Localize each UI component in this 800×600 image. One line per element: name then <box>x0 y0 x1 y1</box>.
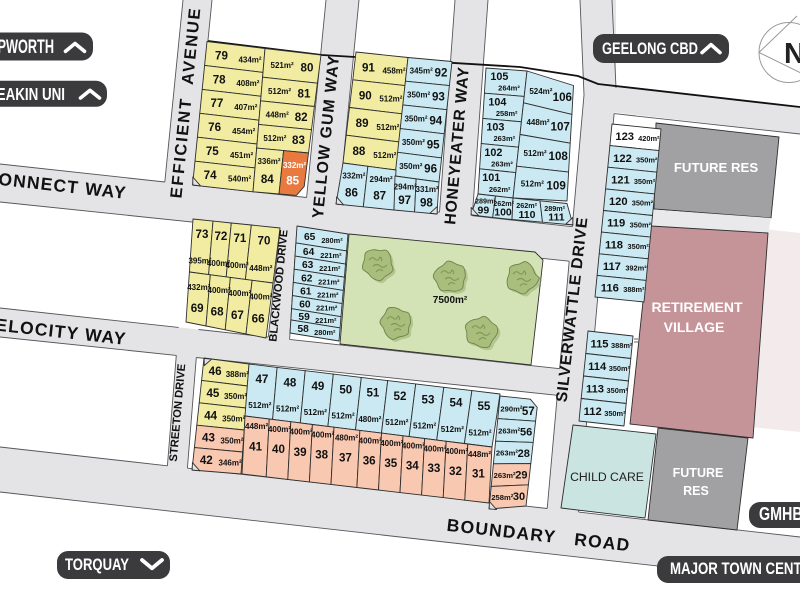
svg-text:89: 89 <box>356 117 369 130</box>
svg-text:51: 51 <box>366 387 379 400</box>
svg-text:98: 98 <box>420 197 433 210</box>
svg-text:454m²: 454m² <box>232 127 255 136</box>
svg-text:512m²: 512m² <box>376 123 399 132</box>
svg-text:45: 45 <box>206 387 219 400</box>
svg-text:400m²: 400m² <box>359 436 382 445</box>
svg-text:111: 111 <box>548 212 565 224</box>
svg-text:221m²: 221m² <box>315 316 337 325</box>
svg-text:512m²: 512m² <box>413 422 436 431</box>
svg-text:221m²: 221m² <box>317 291 339 300</box>
svg-text:332m²: 332m² <box>342 172 365 181</box>
svg-text:350m²: 350m² <box>632 199 654 208</box>
svg-text:82: 82 <box>295 111 308 124</box>
svg-text:350m²: 350m² <box>402 138 425 147</box>
svg-text:DEAKIN UNI: DEAKIN UNI <box>0 84 65 104</box>
svg-text:114: 114 <box>588 361 607 373</box>
svg-text:400m²: 400m² <box>423 444 446 453</box>
svg-text:87: 87 <box>373 190 386 203</box>
svg-text:29: 29 <box>515 469 527 481</box>
svg-text:81: 81 <box>298 88 311 101</box>
svg-text:400m²: 400m² <box>380 439 403 448</box>
svg-text:512m²: 512m² <box>248 401 271 410</box>
svg-text:350m²: 350m² <box>222 414 245 423</box>
svg-text:458m²: 458m² <box>382 67 405 76</box>
svg-text:53: 53 <box>422 393 435 406</box>
svg-text:350m²: 350m² <box>630 220 652 229</box>
svg-text:47: 47 <box>255 373 268 386</box>
svg-text:99: 99 <box>478 204 490 216</box>
svg-text:49: 49 <box>311 380 324 393</box>
svg-text:345m²: 345m² <box>410 67 433 76</box>
svg-text:108: 108 <box>549 150 569 163</box>
svg-text:400m²: 400m² <box>290 428 313 437</box>
svg-text:33: 33 <box>427 462 440 475</box>
svg-text:346m²: 346m² <box>219 459 242 468</box>
svg-text:76: 76 <box>208 121 221 134</box>
svg-text:75: 75 <box>206 145 219 158</box>
svg-text:112: 112 <box>584 406 602 418</box>
svg-text:79: 79 <box>215 49 228 62</box>
svg-text:116: 116 <box>601 283 619 295</box>
svg-text:400m²: 400m² <box>228 289 251 298</box>
svg-text:106: 106 <box>553 91 573 104</box>
svg-text:50: 50 <box>339 383 352 396</box>
svg-text:95: 95 <box>427 139 440 152</box>
svg-text:86: 86 <box>345 186 358 199</box>
svg-text:73: 73 <box>196 228 209 241</box>
svg-text:55: 55 <box>477 400 490 413</box>
svg-text:263m²: 263m² <box>494 471 516 480</box>
svg-text:294m²: 294m² <box>370 175 393 184</box>
svg-text:451m²: 451m² <box>230 151 253 160</box>
svg-text:TORQUAY: TORQUAY <box>65 556 129 574</box>
svg-text:512m²: 512m² <box>263 134 286 143</box>
svg-text:60: 60 <box>299 300 311 311</box>
svg-text:123: 123 <box>615 131 634 143</box>
svg-text:64: 64 <box>303 247 315 258</box>
svg-text:30: 30 <box>513 491 525 503</box>
svg-text:RETIREMENT: RETIREMENT <box>652 299 743 315</box>
svg-text:521m²: 521m² <box>271 61 294 70</box>
svg-text:67: 67 <box>231 309 244 322</box>
svg-text:332m²: 332m² <box>283 161 306 170</box>
svg-text:117: 117 <box>603 261 621 273</box>
svg-text:107: 107 <box>551 121 570 134</box>
svg-text:407m²: 407m² <box>234 103 257 112</box>
svg-text:420m²: 420m² <box>638 134 660 143</box>
svg-text:264m²: 264m² <box>498 84 520 93</box>
svg-text:400m²: 400m² <box>402 442 425 451</box>
svg-text:FUTURE: FUTURE <box>673 466 724 480</box>
svg-text:294m²: 294m² <box>394 183 417 192</box>
svg-text:93: 93 <box>432 91 445 104</box>
svg-text:480m²: 480m² <box>358 415 381 424</box>
svg-text:258m²: 258m² <box>496 109 518 118</box>
svg-text:42: 42 <box>200 454 213 467</box>
svg-text:90: 90 <box>359 89 372 102</box>
svg-text:400m²: 400m² <box>311 430 334 439</box>
svg-text:122: 122 <box>613 153 632 165</box>
svg-text:350m²: 350m² <box>224 392 247 401</box>
svg-text:400m²: 400m² <box>226 261 249 270</box>
svg-text:52: 52 <box>394 390 407 403</box>
svg-text:350m²: 350m² <box>607 386 629 395</box>
svg-text:57: 57 <box>522 405 535 418</box>
svg-text:100: 100 <box>494 207 512 219</box>
svg-text:408m²: 408m² <box>236 79 259 88</box>
svg-text:434m²: 434m² <box>238 55 261 64</box>
svg-text:48: 48 <box>283 377 296 390</box>
svg-text:39: 39 <box>294 446 307 459</box>
svg-text:59: 59 <box>298 312 310 323</box>
svg-text:221m²: 221m² <box>319 264 341 273</box>
svg-text:400m²: 400m² <box>445 447 468 456</box>
svg-text:262m²: 262m² <box>489 185 511 194</box>
svg-text:65: 65 <box>304 232 316 243</box>
svg-text:121: 121 <box>611 175 630 187</box>
svg-text:350m²: 350m² <box>407 91 430 100</box>
svg-text:448m²: 448m² <box>249 264 272 273</box>
svg-text:97: 97 <box>398 194 411 207</box>
svg-text:36: 36 <box>363 454 376 467</box>
svg-text:400m²: 400m² <box>249 292 272 301</box>
svg-text:103: 103 <box>486 122 504 134</box>
svg-text:78: 78 <box>213 73 226 86</box>
svg-text:83: 83 <box>292 134 305 147</box>
svg-text:388m²: 388m² <box>611 341 633 350</box>
svg-text:FUTURE RES: FUTURE RES <box>674 160 758 175</box>
svg-text:119: 119 <box>607 218 625 230</box>
svg-text:512m²: 512m² <box>304 408 327 417</box>
svg-text:58: 58 <box>298 324 310 335</box>
svg-text:258m²: 258m² <box>491 493 513 502</box>
svg-text:RES: RES <box>683 484 709 498</box>
svg-text:512m²: 512m² <box>385 418 408 427</box>
svg-text:512m²: 512m² <box>373 151 396 160</box>
svg-text:94: 94 <box>429 115 442 128</box>
svg-text:N: N <box>784 38 800 70</box>
svg-text:448m²: 448m² <box>245 422 268 431</box>
svg-text:85: 85 <box>286 174 299 187</box>
svg-text:331m²: 331m² <box>416 185 439 194</box>
svg-text:512m²: 512m² <box>379 95 402 104</box>
svg-text:350m²: 350m² <box>220 436 243 445</box>
svg-text:GMHBA: GMHBA <box>759 504 800 524</box>
svg-text:CHILD CARE: CHILD CARE <box>570 470 644 484</box>
svg-text:524m²: 524m² <box>529 87 552 96</box>
svg-text:34: 34 <box>406 460 419 473</box>
svg-text:350m²: 350m² <box>609 364 631 373</box>
svg-text:74: 74 <box>204 169 217 182</box>
svg-text:113: 113 <box>586 384 604 396</box>
svg-text:7500m²: 7500m² <box>433 295 468 306</box>
svg-text:VILLAGE: VILLAGE <box>664 319 725 335</box>
svg-text:448m²: 448m² <box>468 450 491 459</box>
svg-text:120: 120 <box>609 196 628 208</box>
svg-text:105: 105 <box>490 71 508 83</box>
svg-text:480m²: 480m² <box>335 433 358 442</box>
svg-text:MAJOR TOWN CENTRE: MAJOR TOWN CENTRE <box>670 560 800 578</box>
svg-text:70: 70 <box>258 235 271 248</box>
svg-text:35: 35 <box>384 457 397 470</box>
svg-text:71: 71 <box>233 232 246 245</box>
svg-text:448m²: 448m² <box>526 118 549 127</box>
svg-text:31: 31 <box>472 468 485 481</box>
svg-text:63: 63 <box>302 260 314 271</box>
svg-text:263m²: 263m² <box>493 134 515 143</box>
svg-text:38: 38 <box>315 449 328 462</box>
svg-text:EPWORTH: EPWORTH <box>0 37 54 58</box>
svg-text:115: 115 <box>590 339 608 351</box>
svg-text:512m²: 512m² <box>521 180 544 189</box>
svg-text:280m²: 280m² <box>321 236 343 245</box>
svg-text:388m²: 388m² <box>226 370 249 379</box>
svg-text:336m²: 336m² <box>257 157 280 166</box>
svg-text:290m²: 290m² <box>500 404 522 413</box>
svg-text:512m²: 512m² <box>268 87 291 96</box>
svg-text:109: 109 <box>546 180 566 193</box>
svg-text:221m²: 221m² <box>318 277 340 286</box>
svg-text:104: 104 <box>488 96 506 108</box>
svg-text:263m²: 263m² <box>491 160 513 169</box>
svg-text:37: 37 <box>339 451 352 464</box>
svg-text:61: 61 <box>300 287 312 298</box>
svg-text:512m²: 512m² <box>524 149 547 158</box>
svg-text:62: 62 <box>301 273 313 284</box>
svg-text:448m²: 448m² <box>266 110 289 119</box>
svg-text:110: 110 <box>519 209 536 221</box>
svg-text:69: 69 <box>191 302 204 315</box>
svg-text:96: 96 <box>424 163 437 176</box>
svg-text:350m²: 350m² <box>628 242 650 251</box>
svg-text:41: 41 <box>249 441 262 454</box>
svg-text:84: 84 <box>261 173 274 186</box>
svg-text:43: 43 <box>202 432 215 445</box>
svg-text:350m²: 350m² <box>636 156 658 165</box>
svg-text:72: 72 <box>214 230 227 243</box>
svg-text:80: 80 <box>301 62 314 75</box>
svg-text:92: 92 <box>435 67 448 80</box>
svg-text:77: 77 <box>210 97 223 110</box>
svg-text:350m²: 350m² <box>399 162 422 171</box>
svg-text:512m²: 512m² <box>441 425 464 434</box>
svg-text:540m²: 540m² <box>228 175 251 184</box>
svg-text:221m²: 221m² <box>320 251 342 260</box>
svg-text:66: 66 <box>252 313 265 326</box>
svg-text:392m²: 392m² <box>625 264 647 273</box>
svg-text:88: 88 <box>352 145 365 158</box>
svg-text:46: 46 <box>209 365 222 378</box>
svg-text:263m²: 263m² <box>498 427 520 436</box>
svg-text:263m²: 263m² <box>496 449 518 458</box>
svg-text:118: 118 <box>605 239 623 251</box>
svg-text:512m²: 512m² <box>468 429 491 438</box>
svg-text:102: 102 <box>484 147 502 159</box>
svg-text:221m²: 221m² <box>316 304 338 313</box>
svg-text:512m²: 512m² <box>332 412 355 421</box>
svg-text:400m²: 400m² <box>268 425 291 434</box>
svg-text:40: 40 <box>272 443 285 456</box>
svg-text:512m²: 512m² <box>276 405 299 414</box>
svg-text:388m²: 388m² <box>623 285 645 294</box>
svg-text:350m²: 350m² <box>404 114 427 123</box>
svg-text:32: 32 <box>449 465 462 478</box>
svg-text:54: 54 <box>450 397 463 410</box>
svg-text:101: 101 <box>482 172 500 184</box>
svg-text:44: 44 <box>204 409 217 422</box>
svg-text:68: 68 <box>211 305 224 318</box>
svg-text:350m²: 350m² <box>634 177 656 186</box>
svg-text:GEELONG CBD: GEELONG CBD <box>602 40 698 58</box>
svg-text:91: 91 <box>362 61 375 74</box>
svg-text:280m²: 280m² <box>314 328 336 337</box>
svg-text:56: 56 <box>520 426 532 438</box>
svg-text:350m²: 350m² <box>604 409 626 418</box>
svg-text:28: 28 <box>518 448 530 460</box>
